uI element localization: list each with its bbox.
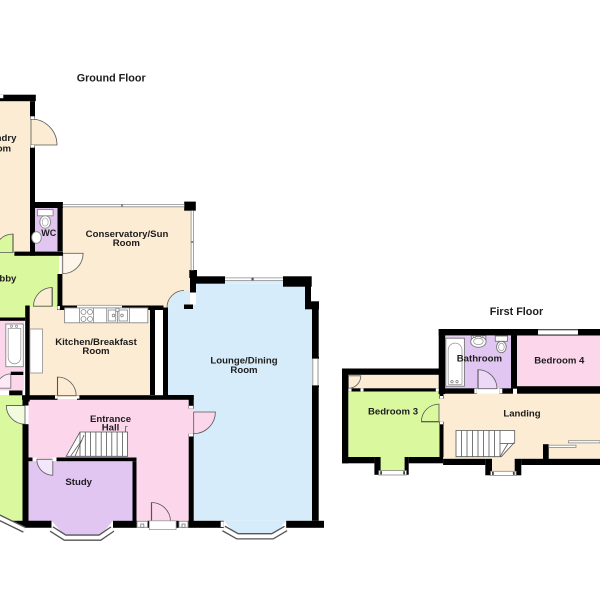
svg-text:Room: Room xyxy=(113,238,140,249)
svg-text:Room: Room xyxy=(230,365,257,376)
svg-text:Room: Room xyxy=(82,346,109,357)
svg-text:Landing: Landing xyxy=(503,409,540,420)
svg-text:First Floor: First Floor xyxy=(490,306,544,318)
svg-text:Lobby: Lobby xyxy=(0,273,17,284)
svg-text:WC: WC xyxy=(41,228,56,238)
svg-text:Bedroom 4: Bedroom 4 xyxy=(534,356,585,367)
svg-text:Bedroom 3: Bedroom 3 xyxy=(368,406,418,417)
svg-text:Room: Room xyxy=(0,143,11,154)
svg-text:Study: Study xyxy=(65,477,92,488)
svg-text:Ground Floor: Ground Floor xyxy=(77,73,147,85)
svg-text:Bathroom: Bathroom xyxy=(457,353,502,364)
